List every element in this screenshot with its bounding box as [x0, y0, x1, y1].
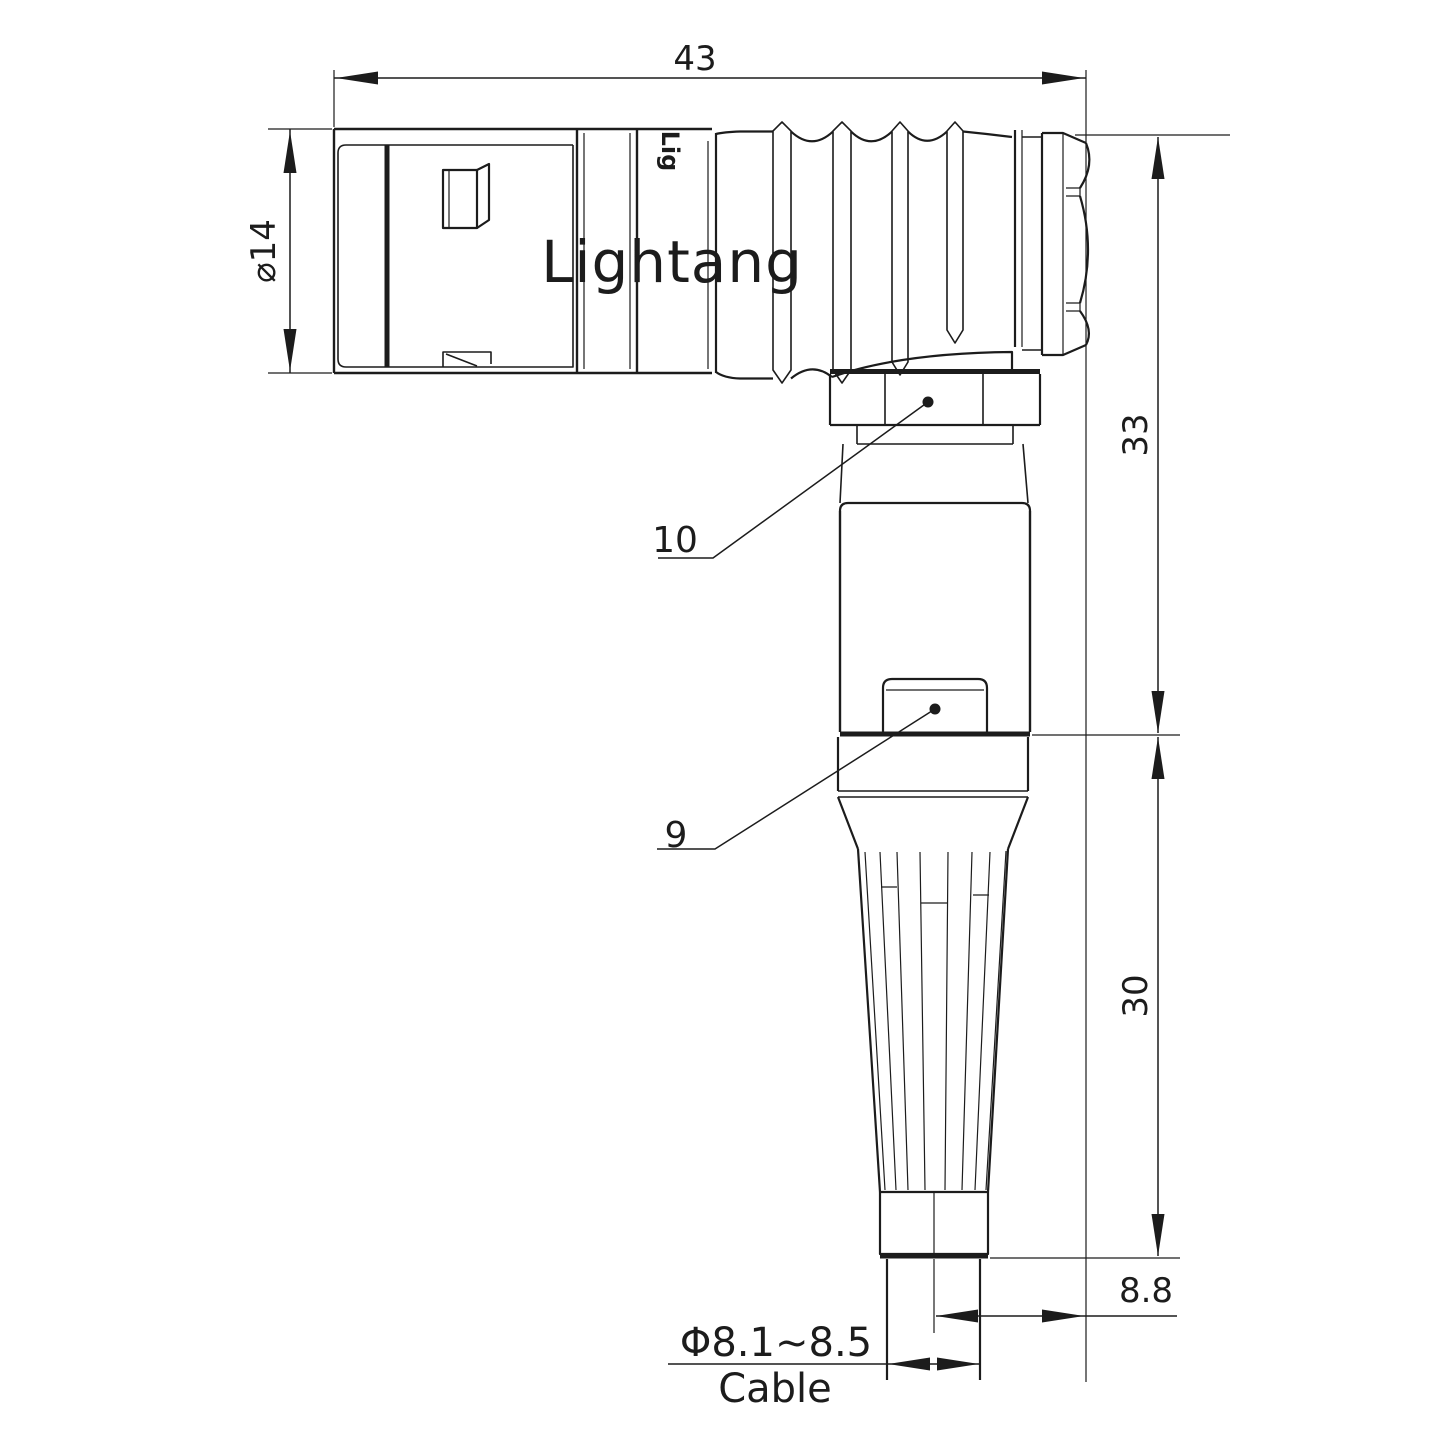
callout-10-label: 10	[652, 520, 698, 561]
callout-9-label: 9	[665, 815, 688, 856]
dimension-cable-offset: 8.8	[936, 1271, 1177, 1323]
dimension-lower-height: 30	[990, 737, 1180, 1258]
dim-length-label: 43	[673, 39, 716, 79]
rear-nut	[1022, 133, 1089, 355]
technical-drawing-page: Lightang Lig	[0, 0, 1440, 1440]
body-barrel: Lig	[656, 131, 684, 172]
strain-relief-boot	[838, 737, 1028, 1192]
cable-diameter-label: Φ8.1~8.5	[680, 1320, 872, 1366]
cable-ferrule	[880, 1192, 988, 1256]
dimension-cable-diameter: Φ8.1~8.5 Cable	[668, 1320, 980, 1412]
dim-diameter-label: ⌀14	[244, 219, 284, 283]
bottom-latch-slot	[443, 352, 491, 367]
elbow-hex-nut	[830, 372, 1040, 426]
connector-dimension-drawing: Lightang Lig	[0, 0, 1440, 1440]
cable-word-label: Cable	[718, 1366, 832, 1412]
callout-cable-clamp: 9	[657, 704, 941, 857]
elbow-body	[840, 425, 1030, 734]
dim-upper-height-label: 33	[1116, 413, 1156, 456]
body-logo-text: Lig	[656, 131, 684, 172]
dim-offset-label: 8.8	[1119, 1271, 1173, 1311]
latch-window	[443, 164, 489, 228]
watermark-text: Lightang	[541, 228, 803, 296]
dimension-front-diameter: ⌀14	[244, 129, 332, 373]
callout-hex-nut: 10	[652, 397, 933, 562]
callout-10-dot	[923, 397, 934, 408]
dim-lower-height-label: 30	[1116, 974, 1156, 1017]
callout-9-dot	[930, 704, 941, 715]
dimension-upper-height: 33	[1032, 135, 1230, 735]
